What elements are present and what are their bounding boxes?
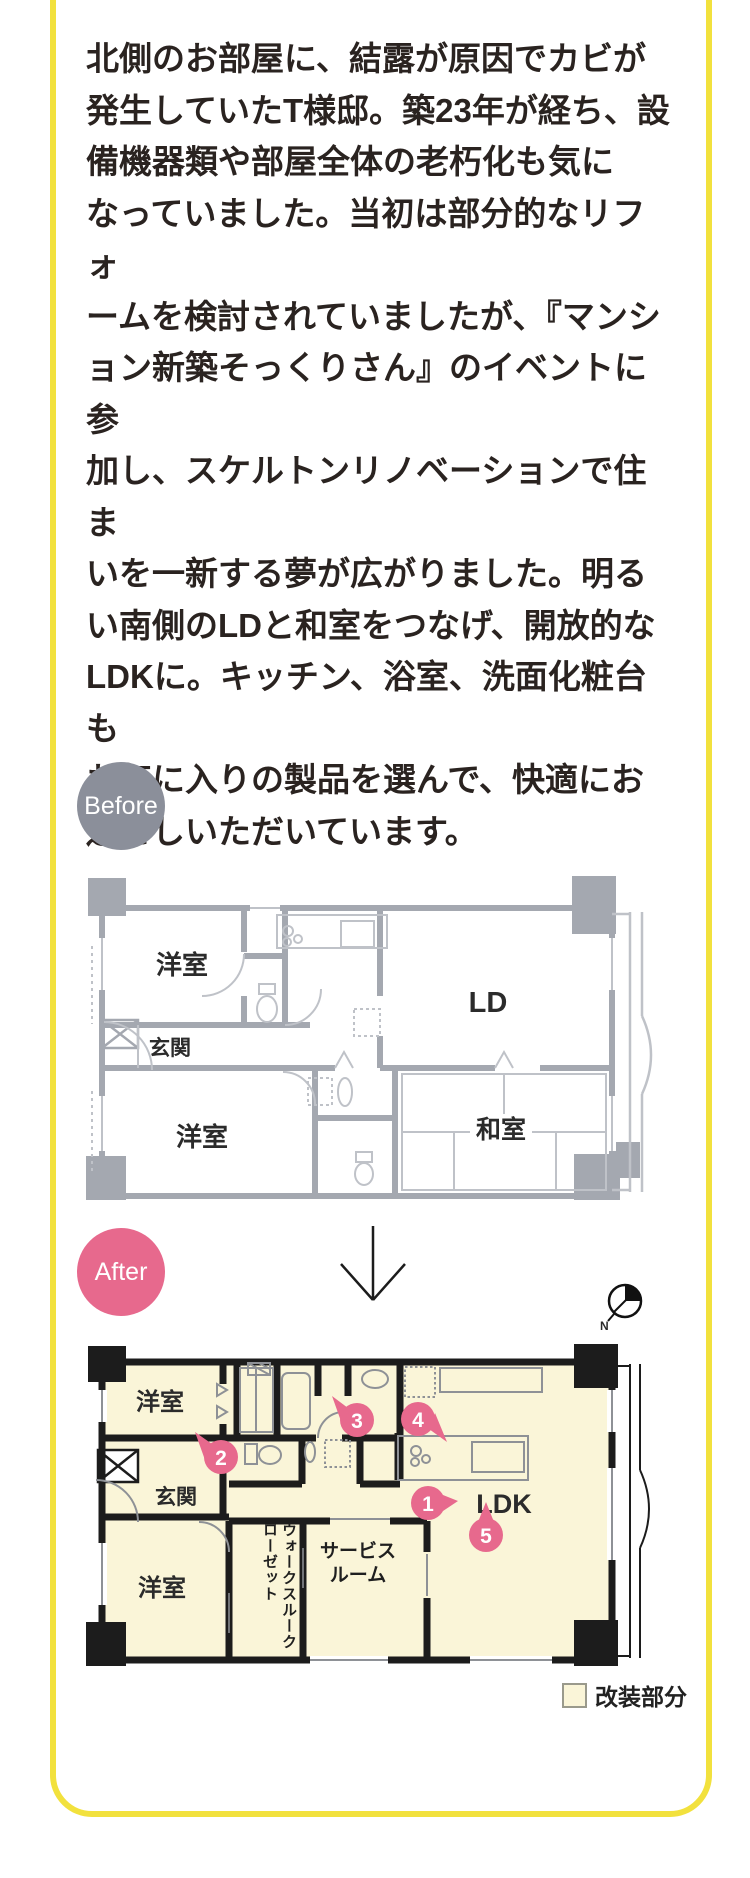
compass-n-label: N xyxy=(600,1319,609,1332)
before-room-bedroom-bottom: 洋室 xyxy=(176,1122,228,1152)
after-badge: After xyxy=(77,1228,165,1316)
before-room-bedroom-top: 洋室 xyxy=(156,950,208,980)
north-compass: N xyxy=(597,1278,651,1332)
before-badge-label: Before xyxy=(84,792,158,821)
before-room-living-dining: LD xyxy=(469,987,508,1019)
legend: 改装部分 xyxy=(562,1678,687,1712)
down-arrow xyxy=(325,1222,421,1312)
svg-text:5: 5 xyxy=(480,1525,492,1548)
after-floor-plan-drawing: 洋室 玄関 洋室 LDK 1 2 3 xyxy=(80,1338,712,1672)
down-arrow-icon xyxy=(325,1222,421,1312)
after-room-service: サービス ルーム xyxy=(304,1540,412,1588)
after-balcony xyxy=(612,1364,649,1658)
after-room-walkthrough-closet: ウォークスルークローゼット xyxy=(256,1522,298,1662)
before-floor-plan: 洋室 玄関 洋室 LD 和室 xyxy=(80,856,712,1208)
before-room-entrance: 玄関 xyxy=(149,1036,191,1060)
after-room-entrance: 玄関 xyxy=(155,1485,197,1509)
svg-text:3: 3 xyxy=(351,1410,363,1433)
svg-text:4: 4 xyxy=(412,1409,424,1432)
north-compass-icon: N xyxy=(597,1278,651,1332)
legend-swatch xyxy=(562,1683,587,1708)
after-room-bedroom-top: 洋室 xyxy=(136,1388,184,1416)
before-floor-plan-drawing: 洋室 玄関 洋室 LD 和室 xyxy=(80,856,712,1208)
after-floor-plan: 洋室 玄関 洋室 LDK 1 2 3 xyxy=(80,1338,712,1672)
svg-text:2: 2 xyxy=(215,1447,227,1470)
article-text: 北側のお部屋に、結露が原因でカビが 発生していたT様邸。築23年が経ち、設 備機… xyxy=(86,33,678,857)
before-badge: Before xyxy=(77,762,165,850)
after-room-bedroom-bottom: 洋室 xyxy=(138,1574,186,1602)
after-badge-label: After xyxy=(95,1258,148,1287)
page: 北側のお部屋に、結露が原因でカビが 発生していたT様邸。築23年が経ち、設 備機… xyxy=(0,0,750,1878)
legend-label: 改装部分 xyxy=(595,1678,687,1712)
before-room-japanese: 和室 xyxy=(476,1115,526,1144)
svg-text:1: 1 xyxy=(422,1493,434,1516)
